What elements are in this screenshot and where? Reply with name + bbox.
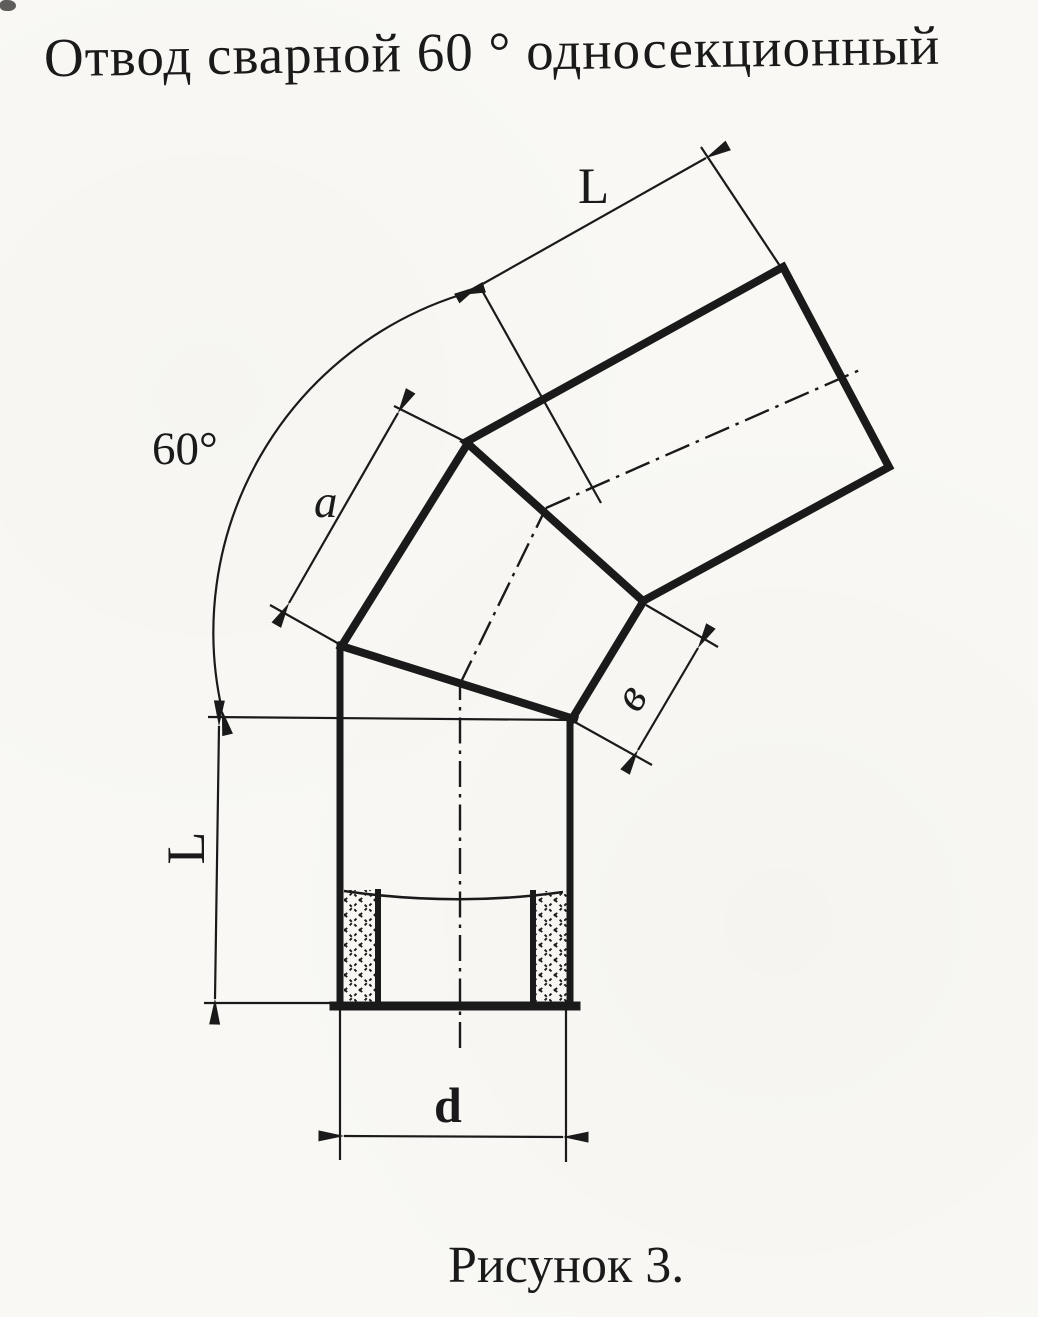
- elbow-technical-drawing: L 60° a в L d: [0, 0, 1038, 1317]
- hatch-strip-right: [536, 891, 567, 1003]
- label-L-left: L: [156, 832, 216, 865]
- label-b: в: [603, 675, 658, 720]
- scanned-page: Отвод сварной 60 ° односекционный: [0, 0, 1038, 1317]
- middle-section-left-edge: [341, 443, 468, 647]
- centerline-upper-pipe: [546, 369, 862, 508]
- extension-line-a-top: [394, 406, 470, 444]
- label-angle-60: 60°: [152, 423, 218, 475]
- extension-line-b-top: [646, 605, 718, 647]
- label-d: d: [434, 1077, 462, 1133]
- centerline-middle-section: [460, 508, 546, 684]
- label-a: a: [314, 476, 338, 528]
- upper-pipe-outline: [466, 267, 889, 601]
- figure-caption: Рисунок 3.: [448, 1236, 684, 1295]
- weld-seam-lower: [341, 646, 574, 719]
- label-L-top: L: [578, 159, 609, 215]
- extension-line-weld-level: [208, 717, 574, 720]
- extension-line-L-top-right: [701, 147, 780, 266]
- pipe-outlines: [334, 267, 889, 1007]
- extension-line-a-bottom: [270, 605, 348, 649]
- extension-line-b-bottom: [573, 721, 652, 765]
- dimension-line-d: [344, 1136, 563, 1137]
- hatch-strip-left: [344, 890, 376, 1003]
- centerlines: [460, 369, 862, 1048]
